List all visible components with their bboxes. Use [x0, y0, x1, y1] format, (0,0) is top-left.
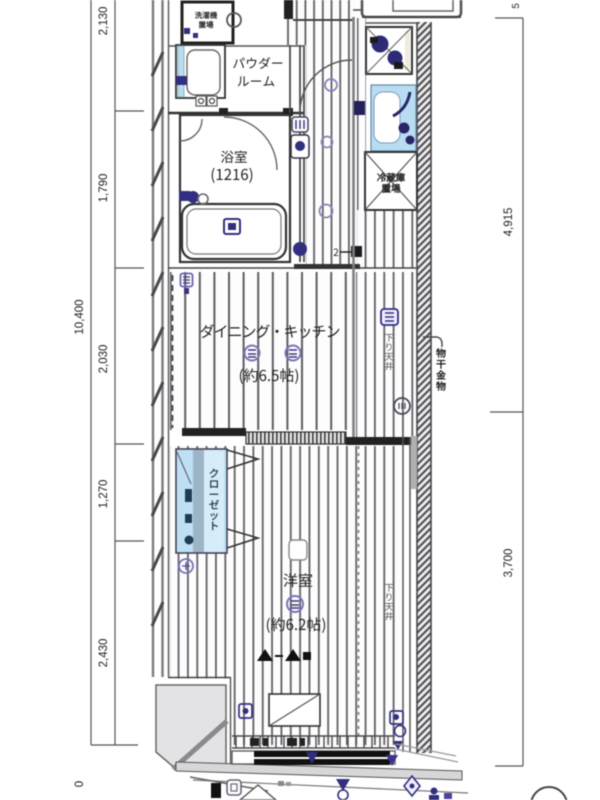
svg-text:2,030: 2,030 — [98, 345, 110, 374]
svg-text:2,130: 2,130 — [98, 7, 110, 36]
svg-text:2,430: 2,430 — [98, 639, 110, 668]
svg-text:0: 0 — [74, 781, 86, 787]
svg-text:5: 5 — [511, 3, 522, 9]
svg-text:1,790: 1,790 — [98, 174, 110, 203]
svg-text:10,400: 10,400 — [74, 299, 86, 334]
svg-text:1,270: 1,270 — [98, 480, 110, 509]
svg-text:3,700: 3,700 — [503, 549, 515, 578]
svg-text:4,915: 4,915 — [503, 208, 515, 237]
